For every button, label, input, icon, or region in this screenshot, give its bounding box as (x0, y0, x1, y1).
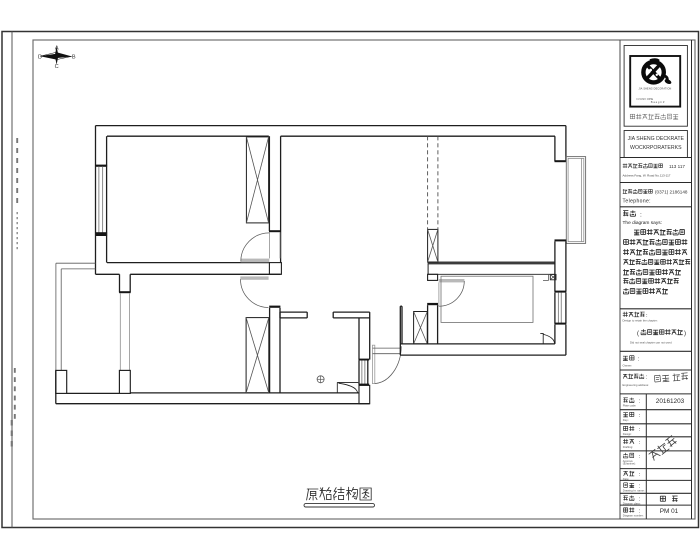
svg-text:JIA SHENG DECKRATE: JIA SHENG DECKRATE (628, 136, 685, 142)
svg-text:B a a g t i #: B a a g t i # (651, 100, 665, 104)
svg-text:): ) (684, 331, 686, 337)
svg-text:Diagram number:: Diagram number: (623, 513, 644, 517)
svg-text:(Examine):: (Examine): (623, 462, 636, 466)
svg-text:20161203: 20161203 (656, 398, 685, 405)
svg-text:Did not seal chapter can not u: Did not seal chapter can not used (630, 341, 672, 345)
svg-text:The diagram says:: The diagram says: (623, 220, 662, 226)
svg-text:(0371) 2186148: (0371) 2186148 (655, 190, 688, 195)
svg-text:Address:Fang, W. Road No.113-1: Address:Fang, W. Road No.113-117 (623, 174, 671, 178)
svg-text:D: D (38, 55, 42, 61)
svg-text:WOCKRPORATERKS: WOCKRPORATERKS (630, 145, 682, 151)
svg-text:Date:: Date: (623, 477, 630, 481)
svg-text:B: B (72, 55, 76, 61)
svg-text:Diagram class:: Diagram class: (623, 501, 641, 505)
svg-text:Engineering address:: Engineering address: (623, 383, 650, 387)
svg-text:Dep.:: Dep.: (623, 418, 630, 422)
svg-text:Design to retain the chapter:: Design to retain the chapter: (623, 319, 658, 323)
svg-text:N.V.INV OPIE: N.V.INV OPIE (637, 97, 654, 101)
svg-text::: : (646, 375, 648, 381)
svg-text:Telephone:: Telephone: (623, 198, 651, 204)
svg-text:Design:: Design: (623, 432, 632, 436)
svg-text::: : (640, 212, 642, 219)
svg-text:Owner:: Owner: (623, 364, 633, 368)
svg-text:Plate code:: Plate code: (623, 404, 637, 408)
svg-text:A: A (55, 45, 59, 51)
svg-text:JIA SHENG DECORATION: JIA SHENG DECORATION (639, 87, 672, 90)
svg-text:(: ( (637, 331, 639, 337)
svg-text:113 117: 113 117 (669, 164, 685, 169)
svg-text:Drafting:: Drafting: (623, 445, 633, 449)
svg-text:PM 01: PM 01 (660, 508, 679, 515)
svg-text:C: C (55, 64, 59, 70)
svg-text:Drawing hr. name:: Drawing hr. name: (623, 489, 645, 493)
